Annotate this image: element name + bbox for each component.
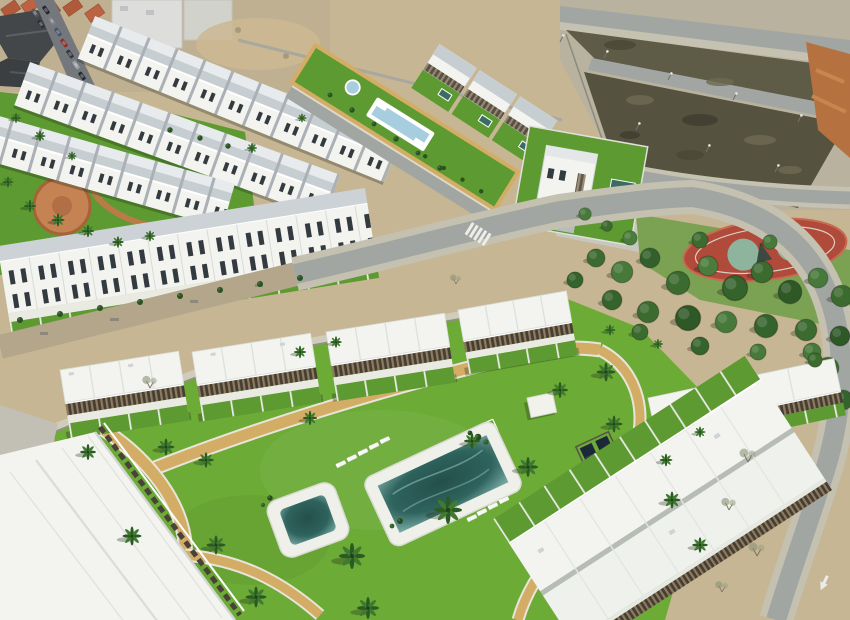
bush — [167, 127, 172, 132]
bush — [17, 317, 23, 323]
bush — [261, 503, 265, 507]
bush — [267, 495, 272, 500]
bush — [437, 165, 442, 170]
bush — [137, 299, 143, 305]
bush — [483, 439, 488, 444]
bush — [57, 311, 63, 317]
bush — [197, 135, 202, 140]
aerial-render-canvas — [0, 0, 850, 620]
bush — [416, 151, 421, 156]
bush — [217, 287, 223, 293]
bush — [225, 143, 230, 148]
aerial-render — [0, 0, 850, 620]
bush — [297, 275, 303, 281]
bush — [97, 305, 103, 311]
bush — [390, 524, 395, 529]
bush — [257, 281, 263, 287]
bush — [177, 293, 183, 299]
bush — [372, 122, 377, 127]
bush — [397, 518, 403, 524]
bush — [349, 107, 354, 112]
bush — [393, 136, 398, 141]
bush — [328, 93, 333, 98]
